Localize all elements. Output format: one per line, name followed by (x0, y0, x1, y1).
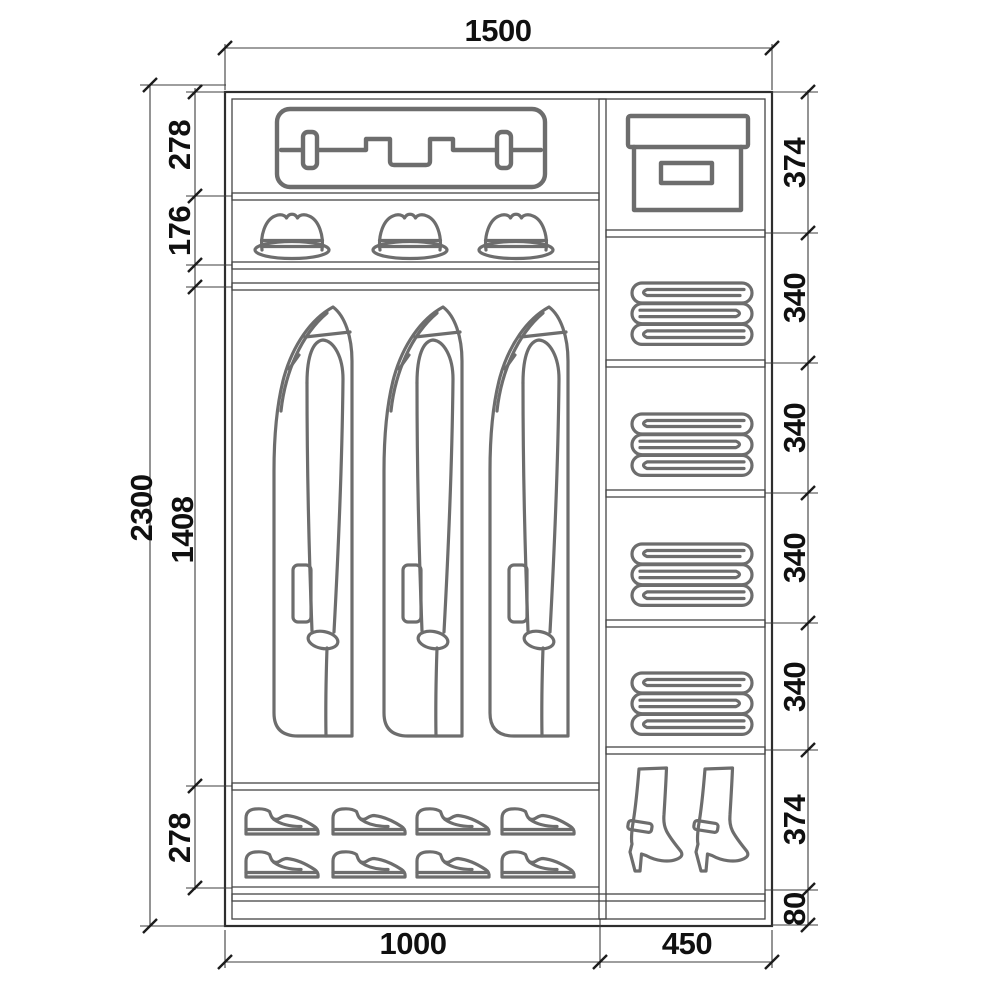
right-shelf-5 (606, 747, 765, 754)
shoe-icon (246, 809, 318, 834)
cabinet-inner-frame (232, 99, 765, 919)
hat-icon (479, 214, 553, 258)
right-shelf-2 (606, 360, 765, 367)
left-shelf-3 (232, 283, 599, 290)
shoe-icon (417, 809, 489, 834)
dim-label-left-width: 1000 (380, 926, 447, 961)
folded-linen-icon (632, 414, 752, 475)
suitcase-latch-right (497, 132, 511, 168)
box-label (661, 163, 712, 183)
dim-label-box-shelf: 374 (777, 137, 812, 188)
shoe-icon (417, 852, 489, 877)
dim-label-linen-shelf-4: 340 (777, 662, 812, 712)
dim-label-linen-shelf-2: 340 (777, 403, 812, 453)
cabinet-contents (246, 109, 752, 877)
left-shelf-1 (232, 193, 599, 200)
dim-label-top-width: 1500 (465, 13, 532, 48)
shoe-icon (333, 852, 405, 877)
hat-icon (255, 214, 329, 258)
dim-label-right-width: 450 (662, 926, 712, 961)
suitcase-latch-left (303, 132, 317, 168)
wardrobe-dimension-diagram: 1500 2300 278 176 1408 278 374 340 340 3… (0, 0, 1000, 1000)
folded-linen-icon (632, 544, 752, 605)
high-heel-boot-icon (627, 768, 681, 871)
hanging-coat-icon (274, 307, 352, 736)
dim-label-shoe-shelf: 278 (162, 813, 197, 863)
high-heel-boot-icon (693, 768, 747, 871)
box-body (634, 147, 741, 210)
shoe-icon (246, 852, 318, 877)
shoe-icon (333, 809, 405, 834)
left-shelf-2 (232, 262, 599, 269)
diagram-canvas: 1500 2300 278 176 1408 278 374 340 340 3… (0, 0, 1000, 1000)
dim-label-hat-shelf: 176 (162, 206, 197, 256)
dim-label-suitcase-shelf: 278 (162, 120, 197, 170)
left-shelf-4 (232, 783, 599, 790)
dim-label-hanging-section: 1408 (165, 496, 200, 563)
right-shelf-1 (606, 230, 765, 237)
folded-linen-icon (632, 673, 752, 734)
dim-label-plinth: 80 (777, 892, 812, 925)
folded-linen-icon (632, 283, 752, 344)
shoe-icon (502, 852, 574, 877)
dim-label-overall-height: 2300 (124, 475, 159, 542)
dim-label-linen-shelf-1: 340 (777, 273, 812, 323)
storage-box-icon (628, 116, 748, 210)
right-shelf-3 (606, 490, 765, 497)
hanging-coat-icon (384, 307, 462, 736)
dim-label-boot-shelf: 374 (777, 794, 812, 845)
suitcase-icon (277, 109, 545, 187)
dim-label-linen-shelf-3: 340 (777, 533, 812, 583)
hanging-coat-icon (490, 307, 568, 736)
right-shelf-4 (606, 620, 765, 627)
box-lid (628, 116, 748, 147)
center-divider-panel (599, 99, 606, 919)
plinth-panel (232, 894, 765, 901)
hat-icon (373, 214, 447, 258)
shoe-icon (502, 809, 574, 834)
